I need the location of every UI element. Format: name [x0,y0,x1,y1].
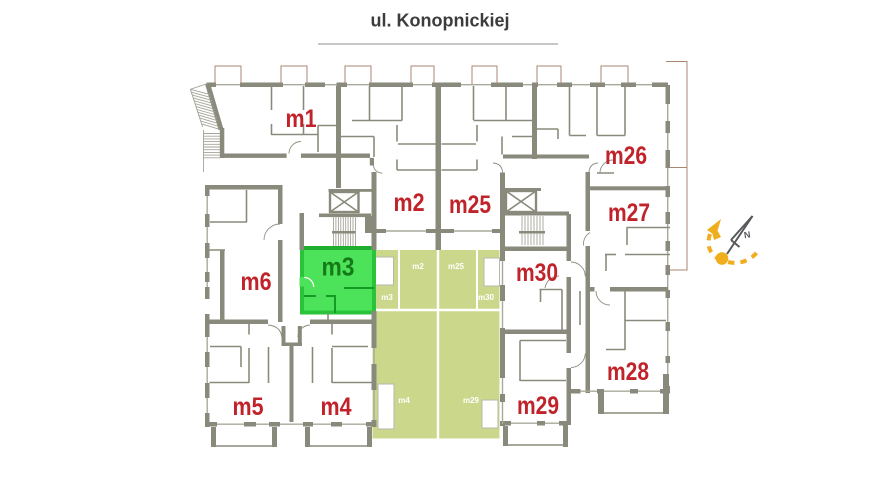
svg-text:m6: m6 [241,268,272,296]
svg-text:N: N [743,229,751,240]
svg-text:m29: m29 [517,392,559,420]
svg-text:m3: m3 [381,293,393,302]
svg-text:m26: m26 [605,142,647,170]
svg-text:ul. Konopnickiej: ul. Konopnickiej [370,11,509,31]
svg-text:m25: m25 [448,262,465,271]
svg-text:m1: m1 [286,105,317,133]
svg-text:m30: m30 [516,259,558,287]
svg-text:m28: m28 [607,358,649,386]
svg-text:m3: m3 [322,252,355,282]
svg-text:m27: m27 [608,199,650,227]
svg-text:m2: m2 [412,262,424,271]
svg-text:m29: m29 [463,396,480,405]
svg-text:m2: m2 [394,189,425,217]
svg-text:m4: m4 [321,393,352,421]
svg-text:m4: m4 [398,396,410,405]
svg-text:m5: m5 [233,393,264,421]
svg-text:m30: m30 [478,293,495,302]
svg-text:m25: m25 [449,191,491,219]
